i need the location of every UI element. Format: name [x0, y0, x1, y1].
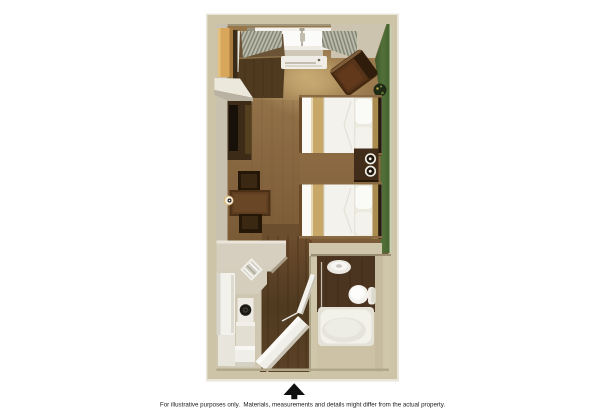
svg-text:For illustrative purposes only: For illustrative purposes only. Material…: [160, 402, 445, 409]
